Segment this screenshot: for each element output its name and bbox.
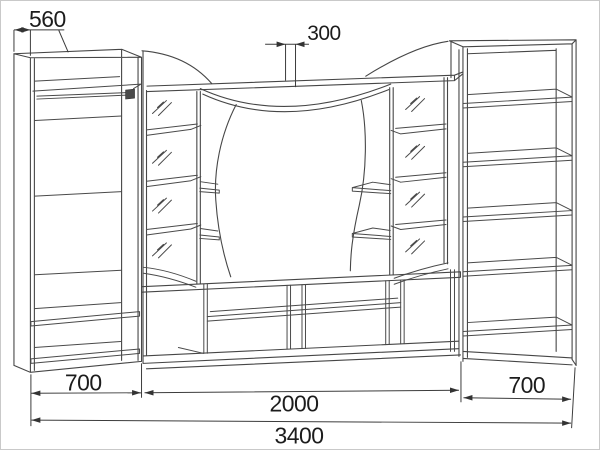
top-panel-band (147, 72, 462, 91)
dim-300-arrow-right (296, 42, 305, 48)
dim-2000-arrow-right (450, 387, 459, 393)
lower-right-end (450, 270, 454, 352)
right-bookcase (450, 40, 577, 366)
dim-700L-arrow-left (31, 390, 40, 396)
right-display-column (391, 42, 451, 284)
left-display-column (143, 52, 201, 364)
dim-3400-arrow-left (31, 417, 40, 423)
niche-barrel-curves (215, 101, 365, 277)
mirror-glass-icon (406, 192, 425, 207)
dim-700-right-label: 700 (508, 372, 545, 398)
dim-700R-arrow-right (562, 396, 571, 402)
wardrobe-bottom-shelves (31, 303, 140, 364)
dimension-700-right: 700 (463, 367, 575, 428)
mirror-glass-icon (406, 239, 425, 254)
dim-2000-label: 2000 (270, 391, 319, 417)
mirror-glass-icon (406, 144, 425, 159)
rail-bracket (126, 89, 135, 99)
dimension-300: 300 (265, 22, 341, 87)
mirror-glass-icon (152, 243, 171, 258)
tabletop (142, 272, 461, 292)
dimension-560: 560 (14, 6, 68, 56)
dimension-2000: 2000 (145, 361, 461, 416)
dim-300-arrow-left (277, 42, 286, 48)
cornice-left-arc (142, 51, 212, 84)
dim-300-label: 300 (307, 22, 340, 45)
wardrobe-interior-lines (33, 77, 141, 275)
right-column-shelves (391, 124, 446, 230)
tv-niche (200, 88, 393, 277)
dim-2000-arrow-left (145, 390, 154, 396)
hanging-rail (37, 93, 127, 99)
dim-700L-arrow-right (132, 390, 141, 396)
lower-mid-shelf (207, 298, 400, 321)
dim-700-left-label: 700 (65, 369, 102, 395)
mirror-glass-icon (152, 150, 171, 165)
lower-shelf-unit (142, 270, 461, 369)
dimension-3400: 3400 (31, 417, 571, 448)
dim-700R-arrow-left (463, 395, 472, 401)
bookcase-base (463, 351, 576, 365)
left-wardrobe (14, 49, 142, 372)
cornice-right-arc (366, 41, 448, 76)
dim-3400-arrow-right (562, 420, 571, 426)
dim-3400-label: 3400 (275, 423, 324, 449)
mirror-glass-icon (406, 97, 425, 112)
dim-560-label: 560 (29, 6, 66, 32)
niche-right-wall (390, 88, 393, 275)
mirror-glass-icon (152, 198, 171, 213)
furniture-drawing: 560 300 700 2000 700 3400 (0, 0, 600, 450)
dimension-700-left: 700 (31, 363, 142, 426)
mirror-glass-icon (152, 101, 171, 116)
left-column-structure (143, 52, 200, 364)
left-column-shelves (147, 124, 201, 235)
drawing-canvas: 560 300 700 2000 700 3400 (1, 1, 599, 449)
